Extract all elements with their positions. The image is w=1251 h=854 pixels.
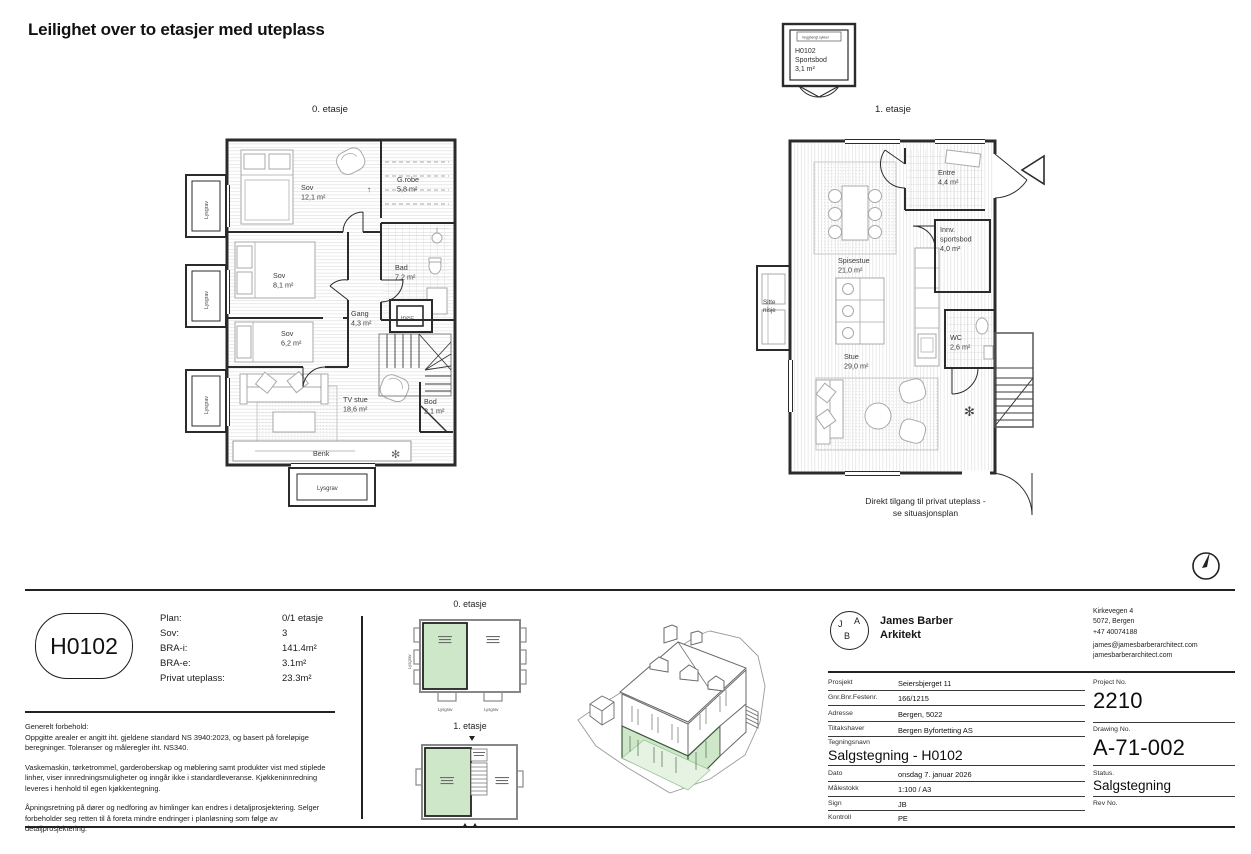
field-value: PE: [898, 814, 908, 823]
room-area: 21,0 m²: [838, 266, 863, 275]
tv-bench: [273, 412, 315, 432]
sink: [984, 346, 993, 359]
disclaimer-p2: Vaskemaskin, tørketrommel, garderoberska…: [25, 763, 337, 795]
architect-logo: J A B: [830, 611, 869, 650]
titleblock-divider: [828, 671, 1235, 673]
field-value: Bergen, 5022: [898, 710, 942, 719]
drawing-no-label: Drawing No.: [1093, 726, 1130, 733]
lysgrav-label: Lysgrav: [204, 396, 210, 414]
room-area: 6,2 m²: [281, 339, 302, 348]
rev-no-block: Rev No.: [1093, 797, 1235, 811]
drawing-name: Salgstegning - H0102: [828, 747, 963, 763]
coffee-table: [865, 403, 891, 429]
keyplan0-label: 0. etasje: [405, 599, 535, 609]
status-label: Status.: [1093, 770, 1114, 777]
room-name: WC: [950, 333, 962, 342]
field-label: Målestokk: [828, 785, 859, 792]
shed: [590, 696, 614, 725]
room-name: Gang: [351, 309, 369, 318]
room-area: 4,3 m²: [351, 319, 372, 328]
lysgrav-label: Lysgrav: [204, 201, 210, 219]
room-name: Sov: [301, 183, 314, 192]
summary-label: BRA-e:: [160, 658, 191, 669]
logo-letter-a: A: [854, 616, 860, 626]
plan1-caption: Direkt tilgang til privat uteplass - se …: [818, 495, 1033, 520]
plan0-label: 0. etasje: [230, 104, 430, 115]
drawing-name-row: Tegningsnavn Salgstegning - H0102: [828, 737, 1085, 766]
plant-icon: ✻: [964, 404, 975, 419]
field-row: Dato onsdag 7. januar 2026: [828, 767, 1085, 782]
divider-vertical: [361, 616, 363, 819]
divider-top: [25, 589, 1235, 591]
summary-label: BRA-i:: [160, 643, 187, 654]
keyplan-1: [402, 733, 537, 833]
room-area: 18,6 m²: [343, 405, 368, 414]
unit-id-badge: H0102: [35, 613, 133, 679]
field-row: Prosjekt Seiersbjerget 11: [828, 677, 1085, 691]
entry-marker-icon: [469, 736, 475, 741]
field-label: Tiltakshaver: [828, 725, 864, 732]
sportsbod-doors: [799, 86, 839, 97]
sportsbod-top-label: Vegghengt sykkel: [802, 36, 829, 40]
room-area: 7,2 m²: [395, 273, 416, 282]
logo-letter-b: B: [844, 631, 850, 641]
up-arrow-icon: ↑: [367, 185, 371, 194]
disclaimer-p1: Oppgitte arealer er angitt iht. gjeldene…: [25, 733, 337, 754]
rev-no-label: Rev No.: [1093, 800, 1118, 807]
field-value: Bergen Byfortetting AS: [898, 726, 973, 735]
lysgrav-label: Lysgrav: [204, 291, 210, 309]
contact-email: james@jamesbarberarchitect.com: [1093, 641, 1198, 651]
room-area: 4,4 m²: [938, 178, 959, 187]
field-label: Sign: [828, 800, 842, 807]
keyplan-0: Lysgrav Lysgrav Lysgrav: [402, 612, 537, 717]
contact-website: jamesbarberarchitect.com: [1093, 651, 1198, 661]
lysgrav-label: Lysgrav: [407, 654, 412, 669]
contact-line: 5072, Bergen: [1093, 617, 1198, 627]
project-no-block: Project No. 2210: [1093, 677, 1235, 723]
lysgrav-label: Lysgrav: [484, 707, 499, 712]
floorplan-0-etasje: HVAC: [185, 130, 475, 515]
field-label: Prosjekt: [828, 679, 853, 686]
summary-label: Sov:: [160, 628, 179, 639]
firm-contact: Kirkevegen 4 5072, Bergen +47 40074188 j…: [1093, 607, 1198, 662]
field-row: Sign JB: [828, 797, 1085, 811]
field-label: Gnr.Bnr.Festenr.: [828, 694, 878, 701]
door-marker-icons: [462, 823, 478, 828]
field-value: 1:100 / A3: [898, 785, 931, 794]
north-arrow: [1183, 543, 1229, 589]
room-area: 2,6 m²: [950, 343, 971, 352]
summary-value: 3: [282, 628, 287, 639]
field-row: Adresse Bergen, 5022: [828, 706, 1085, 722]
drawing-no-block: Drawing No. A-71-002: [1093, 723, 1235, 766]
dining-table: [842, 186, 868, 240]
field-label: Tegningsnavn: [828, 739, 870, 746]
axonometric-house: [560, 598, 815, 828]
field-row: Tiltakshaver Bergen Byfortetting AS: [828, 722, 1085, 737]
summary-value: 141.4m²: [282, 643, 317, 654]
lysgrav-label: Lysgrav: [317, 486, 338, 492]
room-name: Sov: [281, 329, 294, 338]
status-block: Status. Salgstegning: [1093, 767, 1235, 797]
lysgrav-label: Lysgrav: [438, 707, 453, 712]
status-value: Salgstegning: [1093, 778, 1171, 793]
contact-line: Kirkevegen 4: [1093, 607, 1198, 617]
keyplan1-label: 1. etasje: [405, 721, 535, 731]
sportsbod-plan: Vegghengt sykkel H0102 Sportsbod 3,1 m²: [775, 18, 870, 103]
room-name: Sov: [273, 271, 286, 280]
field-value: onsdag 7. januar 2026: [898, 770, 972, 779]
room-name: Stue: [844, 352, 859, 361]
summary-label: Plan:: [160, 613, 182, 624]
unit-id: H0102: [50, 633, 118, 660]
field-row: Målestokk 1:100 / A3: [828, 782, 1085, 797]
floorplan-1-etasje: ✻ Entre 4,4 m² Innv. sportsbod 4,0 m² Sp…: [750, 128, 1050, 528]
project-no: 2210: [1093, 688, 1143, 714]
summary-value: 23.3m²: [282, 673, 312, 684]
sportsbod-line2: Sportsbod: [795, 57, 827, 64]
caption-line1: Direkt tilgang til privat uteplass -: [818, 495, 1033, 507]
entrance-arrow-icon: [1022, 156, 1044, 184]
house-stair: [746, 706, 758, 728]
keyplan1-unit-highlight: [425, 748, 471, 816]
divider-summary: [25, 711, 335, 713]
room-area: 2,1 m²: [424, 407, 445, 416]
summary-value: 0/1 etasje: [282, 613, 323, 624]
room-area: 12,1 m²: [301, 193, 326, 202]
field-row: Gnr.Bnr.Festenr. 166/1215: [828, 691, 1085, 706]
caption-line2: se situasjonsplan: [818, 507, 1033, 519]
field-value: JB: [898, 800, 907, 809]
logo-letter-j: J: [838, 619, 843, 629]
plant-icon: ✻: [391, 449, 400, 461]
sportsbod-line3: 3,1 m²: [795, 66, 816, 73]
room-area: 29,0 m²: [844, 362, 869, 371]
project-no-label: Project No.: [1093, 679, 1127, 686]
toilet: [976, 318, 988, 334]
room-name: TV stue: [343, 395, 368, 404]
field-label: Kontroll: [828, 814, 851, 821]
drawing-sheet: Leilighet over to etasjer med uteplass 0…: [0, 0, 1251, 854]
contact-line: +47 40074188: [1093, 628, 1198, 638]
summary-label: Privat uteplass:: [160, 673, 225, 684]
field-value: Seiersbjerget 11: [898, 679, 951, 688]
room-name: Innv.: [940, 225, 955, 234]
room-area: 4,0 m²: [940, 244, 961, 253]
field-label: Adresse: [828, 710, 853, 717]
plan1-label: 1. etasje: [793, 104, 993, 115]
disclaimer-p3: Åpningsretning på dører og nedforing av …: [25, 803, 337, 835]
north-needle-icon: [1202, 552, 1210, 568]
room-name: Spisestue: [838, 256, 870, 265]
sitte-nisje-label: Sitte: [763, 299, 776, 306]
exterior-stair: [995, 333, 1033, 427]
field-value: 166/1215: [898, 694, 929, 703]
room-name: Entre: [938, 168, 955, 177]
drawing-no: A-71-002: [1093, 735, 1185, 761]
keyplan0-unit-highlight: [423, 623, 467, 689]
room-name: G.robe: [397, 175, 419, 184]
field-label: Dato: [828, 770, 842, 777]
room-area: 5,8 m²: [397, 185, 418, 194]
room-area: 8,1 m²: [273, 281, 294, 290]
field-row: Kontroll PE: [828, 811, 1085, 825]
page-title: Leilighet over to etasjer med uteplass: [28, 20, 325, 40]
summary-value: 3.1m²: [282, 658, 306, 669]
firm-line1: James Barber: [880, 615, 953, 629]
benk-label: Benk: [313, 449, 330, 458]
sitte-nisje-label: nisje: [763, 307, 776, 314]
disclaimer: Generelt forbehold: Oppgitte arealer er …: [25, 722, 337, 844]
sportsbod-line1: H0102: [795, 48, 816, 55]
firm-line2: Arkitekt: [880, 629, 953, 643]
room-name: sportsbod: [940, 235, 972, 244]
room-name: Bod: [424, 397, 437, 406]
unit-summary: Plan: 0/1 etasje Sov: 3 BRA-i: 141.4m² B…: [160, 613, 355, 691]
disclaimer-heading: Generelt forbehold:: [25, 722, 337, 733]
room-name: Bad: [395, 263, 408, 272]
sink: [432, 233, 442, 243]
firm-name: James Barber Arkitekt: [880, 615, 953, 643]
